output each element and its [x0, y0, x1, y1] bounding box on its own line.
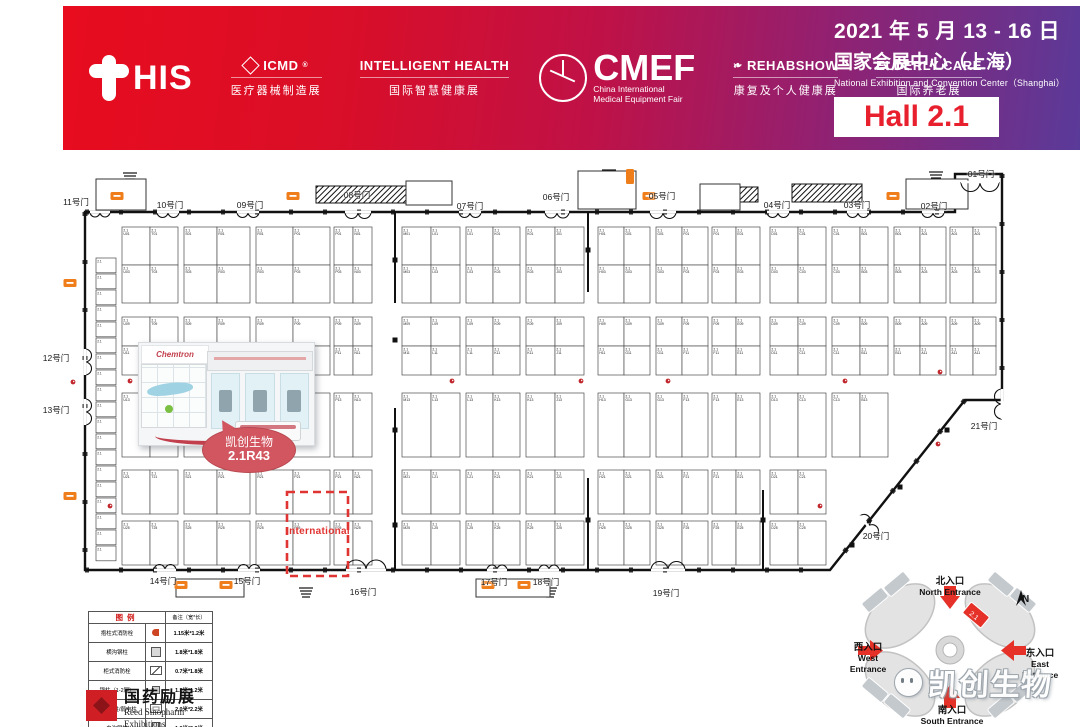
svg-text:2.1: 2.1: [97, 339, 102, 343]
legend-row: 抱柱式消防栓1.15米*1.2米: [89, 624, 213, 643]
booth: [798, 393, 826, 457]
gate-label: 05号门: [649, 190, 675, 202]
booth: [555, 393, 584, 457]
gate-label: 12号门: [43, 352, 69, 364]
service-room: [406, 181, 452, 205]
svg-text:2.1: 2.1: [97, 467, 102, 471]
svg-text:2.1: 2.1: [97, 371, 102, 375]
hydrant-icon: [579, 379, 584, 384]
entrance-label: 西入口West Entrance: [842, 642, 894, 674]
watermark: 凯创生物: [894, 660, 1052, 704]
square-legend-icon: [151, 647, 161, 657]
svg-text:2.1: 2.1: [97, 355, 102, 359]
reed-sinopharm-logo: [86, 690, 117, 721]
organizer-name-en1: Reed Sinopharm: [124, 708, 196, 718]
column-marker: [898, 485, 903, 490]
international-area-label: International: [281, 526, 355, 537]
svg-text:2.1L11: 2.1L11: [467, 347, 473, 355]
svg-text:2.1: 2.1: [97, 531, 102, 535]
page: HIS ICMD® 医疗器械制造展 INTELLIGENT HEALTH 国际智…: [0, 0, 1080, 727]
column-marker: [393, 258, 398, 263]
gate-label: 02号门: [921, 200, 947, 212]
booth: [736, 393, 760, 457]
svg-text:2.1: 2.1: [97, 451, 102, 455]
svg-text:2.1: 2.1: [97, 547, 102, 551]
organizer-name-en2: Exhibitions: [124, 720, 196, 727]
legend-row: 横沟钢柱1.8米*1.8米: [89, 643, 213, 662]
booth-render-accent: [165, 405, 173, 413]
gate-label: 18号门: [533, 576, 559, 588]
gate-label: 20号门: [863, 530, 889, 542]
watermark-text: 凯创生物: [927, 660, 1053, 704]
column-marker: [761, 518, 766, 523]
column-marker: [850, 543, 855, 548]
column-marker: [586, 248, 591, 253]
gate-label: 16号门: [350, 586, 376, 598]
svg-text:2.1: 2.1: [97, 291, 102, 295]
booth: [656, 393, 682, 457]
svg-text:2.1: 2.1: [97, 275, 102, 279]
column-marker: [393, 338, 398, 343]
hydrant-icon: [71, 380, 76, 385]
hydrant-icon: [666, 379, 671, 384]
booth-render-backwall: [207, 351, 313, 371]
gate-label: 01号门: [968, 168, 994, 180]
booth: [624, 393, 650, 457]
entrance-label: 北入口North Entrance: [902, 576, 998, 598]
entrance-label: 南入口South Entrance: [904, 705, 1000, 727]
diagonal-legend-icon: [150, 666, 162, 675]
booth: [353, 393, 372, 457]
gate-label: 10号门: [157, 199, 183, 211]
column-marker: [393, 428, 398, 433]
gate-label: 07号门: [457, 200, 483, 212]
booth-render-wall: [141, 364, 207, 428]
service-room: [700, 184, 740, 210]
booth: [770, 393, 798, 457]
gate-label: 19号门: [653, 587, 679, 599]
booth: [431, 393, 460, 457]
gate-label: 11号门: [63, 196, 89, 208]
svg-text:2.1: 2.1: [97, 387, 102, 391]
gate-label: 09号门: [237, 199, 263, 211]
svg-text:2.1: 2.1: [97, 499, 102, 503]
highlight-booth-callout: 凯创生物 2.1R43: [202, 427, 296, 473]
gate-label: 06号门: [543, 191, 569, 203]
svg-text:2.1: 2.1: [97, 483, 102, 487]
svg-text:2.1: 2.1: [97, 259, 102, 263]
gate-label: 13号门: [43, 404, 69, 416]
gate-label: 15号门: [234, 575, 260, 587]
organizer-block: 国药励展 Reed Sinopharm Exhibitions: [86, 690, 196, 727]
gate-label: 04号门: [764, 199, 790, 211]
gate-label: 14号门: [150, 575, 176, 587]
hydrant-icon: [128, 379, 133, 384]
booth: [334, 393, 353, 457]
svg-text:2.1: 2.1: [97, 435, 102, 439]
facility-icon: [626, 169, 634, 184]
gate-label: 08号门: [344, 189, 370, 201]
legend-title: 图例: [89, 612, 166, 624]
gate-label: 17号门: [481, 576, 507, 588]
booth: [402, 393, 431, 457]
compass-label: N: [1022, 594, 1029, 605]
booth: [682, 393, 708, 457]
svg-text:2.1: 2.1: [97, 419, 102, 423]
organizer-name-cn: 国药励展: [124, 690, 196, 706]
legend-row: 柜式消防栓0.7米*1.8米: [89, 662, 213, 681]
svg-text:2.1J11: 2.1J11: [556, 347, 561, 355]
highlight-booth-number: 2.1R43: [203, 449, 295, 463]
chat-face-icon: [894, 668, 923, 697]
svg-text:2.1: 2.1: [97, 307, 102, 311]
svg-text:2.1: 2.1: [97, 515, 102, 519]
hydrant-icon: [818, 504, 823, 509]
booth-render-logo: Chemtron: [141, 345, 209, 364]
hydrant-icon: [843, 379, 848, 384]
booth: [712, 393, 736, 457]
booth: [860, 393, 888, 457]
gate-label: 03号门: [844, 199, 870, 211]
legend-note-header: 备注（宽*长）: [166, 612, 213, 624]
booth: [466, 393, 493, 457]
column-marker: [945, 428, 950, 433]
hydrant-icon: [936, 442, 941, 447]
column-marker: [586, 518, 591, 523]
hydrant-icon: [450, 379, 455, 384]
svg-text:2.1L11: 2.1L11: [432, 347, 438, 355]
gate-label: 21号门: [971, 420, 997, 432]
booth: [832, 393, 860, 457]
booth: [598, 393, 624, 457]
booth: [493, 393, 520, 457]
booth: [526, 393, 555, 457]
hydrant-icon: [938, 370, 943, 375]
svg-text:2.1: 2.1: [97, 403, 102, 407]
hydrant-icon: [108, 504, 113, 509]
svg-text:2.1: 2.1: [97, 323, 102, 327]
hydrant-red-legend-icon: [152, 629, 159, 636]
column-marker: [393, 523, 398, 528]
